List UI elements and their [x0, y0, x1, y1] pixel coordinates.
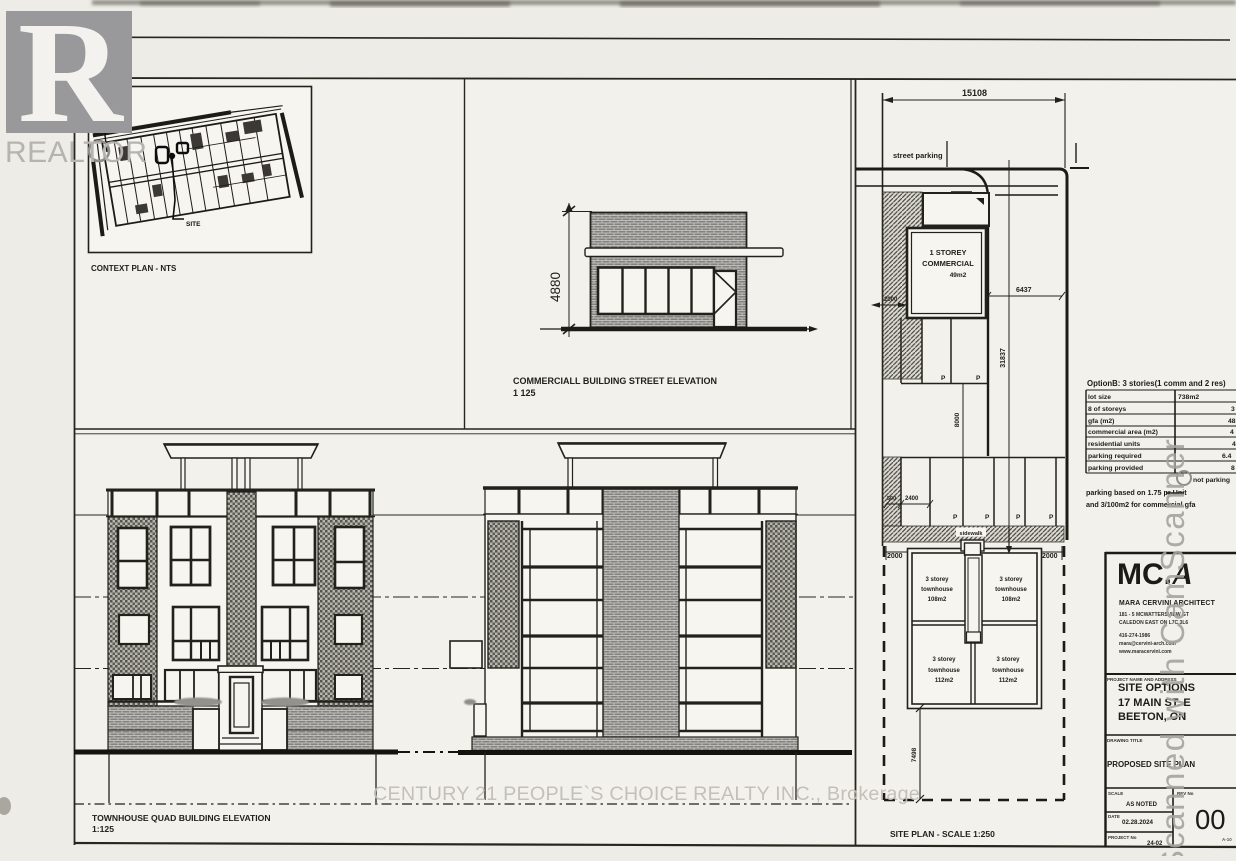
svg-text:SITE: SITE [186, 221, 201, 228]
svg-text:COMMERCIALL BUILDING STREET EL: COMMERCIALL BUILDING STREET ELEVATION [513, 376, 717, 386]
svg-text:CONTEXT PLAN - NTS: CONTEXT PLAN - NTS [91, 264, 177, 273]
svg-text:00: 00 [1195, 804, 1226, 835]
svg-text:P: P [985, 514, 990, 521]
svg-text:TOWNHOUSE QUAD BUILDING ELEVA: TOWNHOUSE QUAD BUILDING ELEVATION [92, 813, 271, 823]
svg-text:6437: 6437 [1016, 287, 1032, 294]
svg-text:P: P [941, 375, 946, 382]
svg-text:P: P [953, 514, 958, 521]
svg-text:townhouse: townhouse [992, 668, 1024, 674]
svg-text:108m2: 108m2 [1002, 597, 1021, 603]
svg-text:SITE PLAN - SCALE 1:250: SITE PLAN - SCALE 1:250 [890, 829, 995, 839]
svg-text:7498: 7498 [911, 747, 918, 762]
svg-text:2000: 2000 [1042, 553, 1058, 560]
svg-text:sidewalk: sidewalk [960, 531, 984, 537]
svg-text:4: 4 [1232, 441, 1236, 448]
svg-text:8000: 8000 [954, 412, 961, 427]
svg-text:townhouse: townhouse [928, 668, 960, 674]
svg-text:4880: 4880 [548, 272, 563, 302]
svg-text:R: R [18, 0, 124, 153]
svg-text:15108: 15108 [962, 88, 987, 98]
svg-text:3 storey: 3 storey [996, 657, 1020, 663]
svg-text:parking provided: parking provided [1088, 465, 1143, 472]
svg-text:1:125: 1:125 [92, 824, 114, 834]
svg-text:3: 3 [1231, 406, 1235, 413]
svg-text:P: P [1049, 514, 1054, 521]
svg-text:6.4: 6.4 [1222, 453, 1232, 460]
svg-text:48: 48 [1228, 418, 1236, 425]
svg-text:COMMERCIAL: COMMERCIAL [922, 259, 974, 268]
svg-text:1 STOREY: 1 STOREY [930, 248, 967, 257]
svg-text:500: 500 [887, 496, 896, 502]
svg-text:8 of storeys: 8 of storeys [1088, 406, 1126, 413]
svg-text:108m2: 108m2 [928, 597, 947, 603]
svg-text:gfa (m2): gfa (m2) [1088, 418, 1114, 425]
svg-text:112m2: 112m2 [935, 678, 954, 684]
svg-text:SCALE: SCALE [1108, 791, 1123, 796]
svg-text:2400: 2400 [905, 496, 919, 502]
svg-text:CENTURY 21 PEOPLE`S CHOICE REA: CENTURY 21 PEOPLE`S CHOICE REALTY INC., … [373, 783, 920, 805]
svg-text:3 storey: 3 storey [925, 577, 949, 583]
svg-text:A-10: A-10 [1222, 837, 1232, 842]
svg-text:1 125: 1 125 [513, 388, 536, 398]
svg-text:Scanned with CamScanner: Scanned with CamScanner [1154, 438, 1191, 856]
svg-text:not parking: not parking [1193, 477, 1230, 484]
svg-text:townhouse: townhouse [921, 587, 953, 593]
svg-text:31837: 31837 [1000, 348, 1007, 368]
svg-text:2000: 2000 [887, 553, 903, 560]
svg-text:112m2: 112m2 [999, 678, 1018, 684]
svg-text:DRAWING TITLE: DRAWING TITLE [1107, 738, 1143, 743]
svg-text:residential units: residential units [1088, 441, 1140, 448]
svg-text:townhouse: townhouse [995, 587, 1027, 593]
svg-text:738m2: 738m2 [1178, 394, 1199, 401]
svg-text:lot size: lot size [1088, 394, 1111, 401]
svg-text:02.28.2024: 02.28.2024 [1122, 819, 1154, 826]
svg-text:DATE: DATE [1108, 814, 1120, 819]
svg-text:OptionB: 3 stories(1 comm and: OptionB: 3 stories(1 comm and 2 res) [1087, 379, 1226, 388]
svg-text:49m2: 49m2 [950, 272, 967, 279]
svg-text:street parking: street parking [893, 151, 943, 160]
svg-text:P: P [1016, 514, 1021, 521]
svg-text:parking required: parking required [1088, 453, 1142, 460]
svg-text:AS NOTED: AS NOTED [1126, 802, 1158, 808]
svg-text:3 storey: 3 storey [999, 577, 1023, 583]
svg-text:REALTOR: REALTOR [5, 136, 147, 169]
svg-text:8: 8 [1231, 465, 1235, 472]
svg-text:P: P [976, 375, 981, 382]
svg-text:4: 4 [1230, 429, 1234, 436]
svg-text:2000: 2000 [884, 297, 898, 303]
svg-text:3 storey: 3 storey [932, 657, 956, 663]
svg-text:commercial area (m2): commercial area (m2) [1088, 429, 1158, 436]
svg-text:PROJECT No: PROJECT No [1108, 835, 1137, 840]
svg-text:416-274-1986: 416-274-1986 [1119, 633, 1150, 639]
